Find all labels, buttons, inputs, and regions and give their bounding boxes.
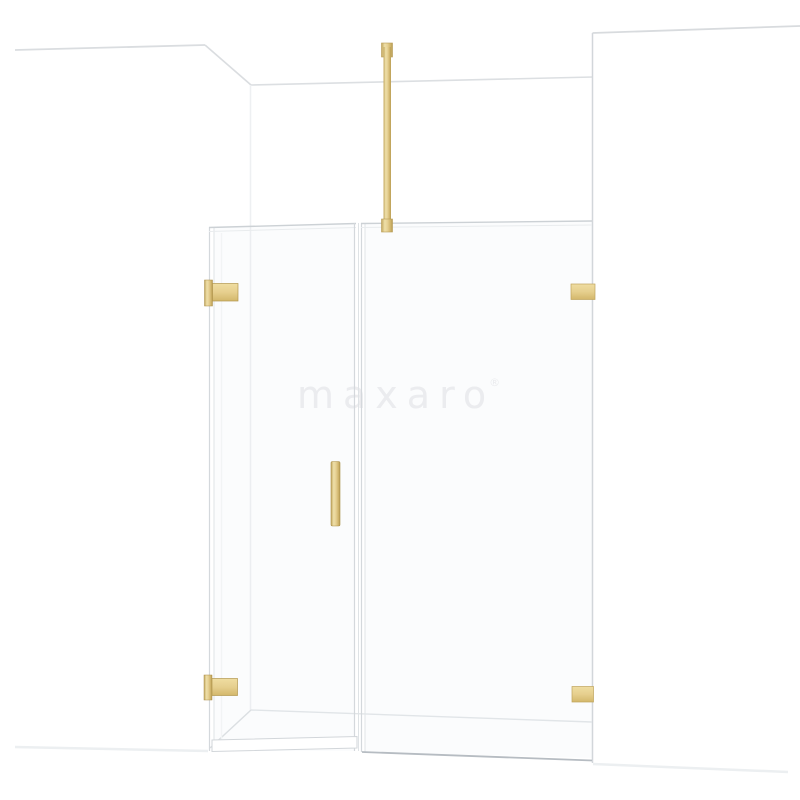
right-wall-ceiling-edge	[593, 26, 800, 33]
panel-wall-bracket-top	[571, 284, 595, 300]
ceiling-bar-glass-clamp	[382, 219, 393, 232]
left-wall-floor-edge	[15, 747, 208, 751]
left-wall-ceiling-edge	[15, 45, 205, 50]
wall-hinge-top-wall-part	[205, 280, 213, 306]
back-wall-top-edge	[251, 77, 593, 85]
wall-hinge-bottom-wall-part	[204, 675, 212, 700]
shower-enclosure-render	[0, 0, 800, 800]
panel-wall-bracket-bottom	[572, 687, 594, 703]
wall-hinge-bottom-plate	[212, 679, 238, 696]
fixed-panel-glass	[365, 221, 592, 758]
door-handle	[331, 462, 340, 527]
right-wall-floor-edge	[593, 764, 788, 772]
left-wall-corner-edge	[205, 45, 251, 85]
ceiling-support-bar	[384, 47, 392, 223]
wall-hinge-top-plate	[213, 284, 239, 302]
product-image: maxaro®	[0, 0, 800, 800]
